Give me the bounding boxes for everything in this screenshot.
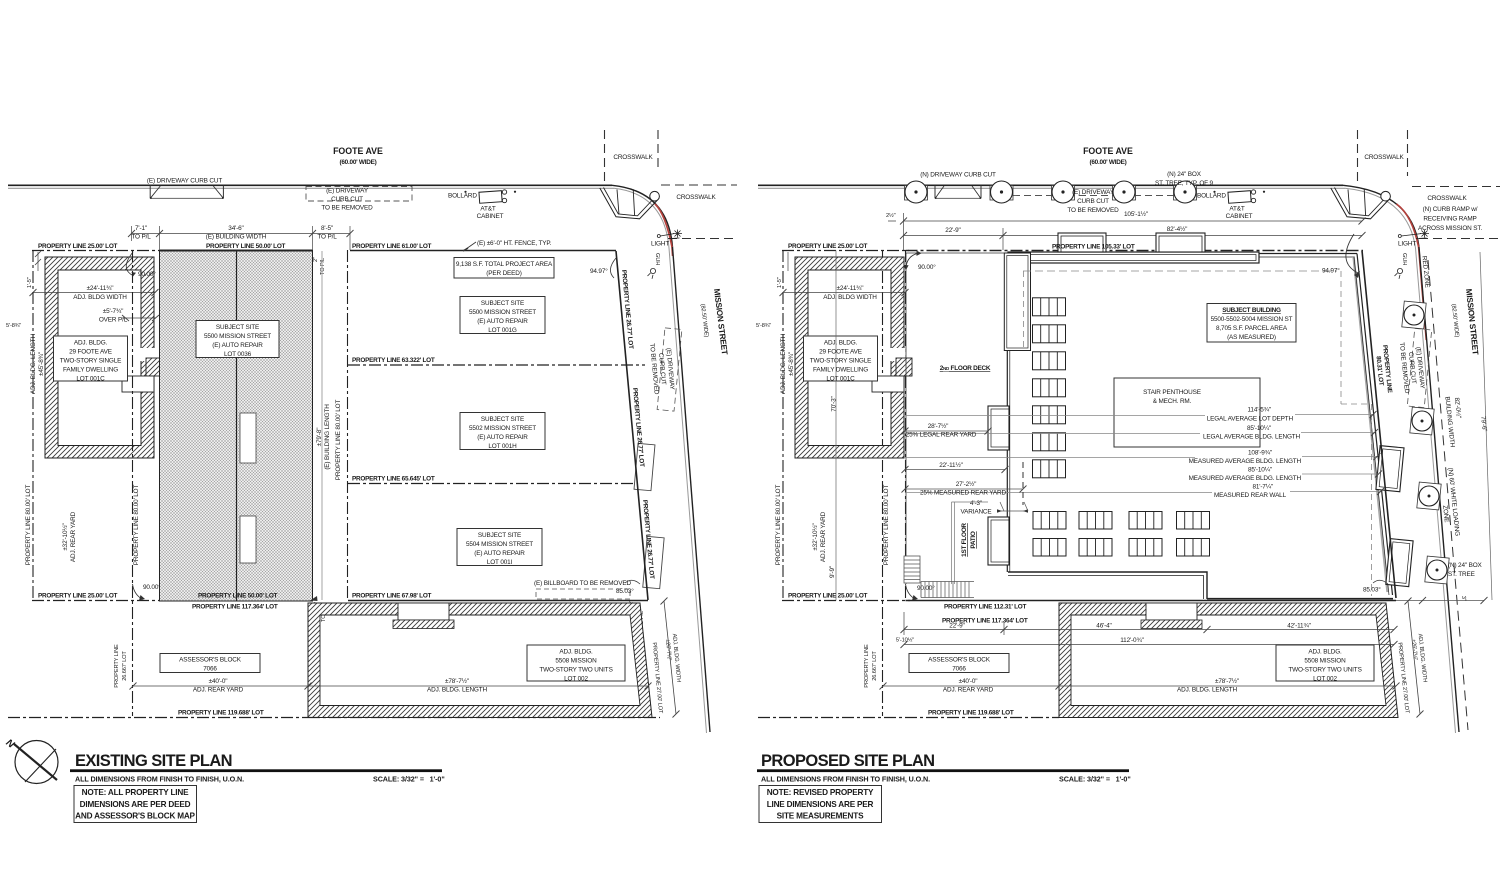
svg-text:PROPERTY LINE 25.00' LOT: PROPERTY LINE 25.00' LOT [788, 243, 868, 250]
svg-text:STAIR PENTHOUSE: STAIR PENTHOUSE [1143, 389, 1201, 396]
svg-text:ADJ. BLDG WIDTH: ADJ. BLDG WIDTH [823, 294, 877, 301]
svg-text:TO P/L: TO P/L [317, 234, 337, 241]
svg-text:PROPOSED SITE PLAN: PROPOSED SITE PLAN [761, 752, 934, 770]
svg-text:LOT 001I: LOT 001I [487, 559, 513, 566]
svg-text:(E) AUTO REPAIR: (E) AUTO REPAIR [212, 342, 263, 349]
svg-text:TWO-STORY TWO UNITS: TWO-STORY TWO UNITS [539, 667, 612, 674]
svg-text:105'-1½": 105'-1½" [1124, 210, 1148, 218]
svg-text:SUBJECT SITE: SUBJECT SITE [216, 324, 259, 331]
svg-text:ADJ. REAR YARD: ADJ. REAR YARD [820, 511, 827, 562]
svg-text:FAMILY DWELLING: FAMILY DWELLING [813, 367, 868, 374]
svg-text:PROPERTY LINE 65.645' LOT: PROPERTY LINE 65.645' LOT [352, 476, 435, 483]
svg-text:PROPERTY LINE 63.322' LOT: PROPERTY LINE 63.322' LOT [352, 357, 435, 364]
svg-text:4'-3": 4'-3" [970, 500, 982, 507]
svg-text:108'-9¾": 108'-9¾" [1248, 450, 1272, 457]
svg-text:85'-10¼": 85'-10¼" [1247, 425, 1271, 432]
svg-text:PROPERTY LINE: PROPERTY LINE [864, 644, 870, 688]
svg-text:±24'-11¾": ±24'-11¾" [837, 285, 864, 292]
svg-text:(E) BILLBOARD TO BE REMOVED: (E) BILLBOARD TO BE REMOVED [534, 580, 631, 587]
svg-text:TWO-STORY SINGLE: TWO-STORY SINGLE [60, 358, 122, 365]
svg-text:ADJ. BLDG WIDTH: ADJ. BLDG WIDTH [73, 294, 127, 301]
svg-text:SUBJECT SITE: SUBJECT SITE [481, 300, 524, 307]
svg-text:1ST FLOOR: 1ST FLOOR [961, 523, 968, 557]
svg-text:(E) DRIVEWAY CURB CUT: (E) DRIVEWAY CURB CUT [147, 178, 222, 185]
svg-text:7066: 7066 [952, 666, 966, 673]
svg-text:±40'-0": ±40'-0" [209, 678, 228, 685]
svg-text:ST. TREE, TYP. OF 9: ST. TREE, TYP. OF 9 [1155, 180, 1213, 187]
svg-text:90.00°: 90.00° [138, 270, 156, 278]
svg-text:5504 MISSION STREET: 5504 MISSION STREET [466, 541, 533, 548]
svg-text:AND ASSESSOR'S BLOCK MAP: AND ASSESSOR'S BLOCK MAP [75, 812, 195, 821]
svg-text:NOTE: ALL PROPERTY LINE: NOTE: ALL PROPERTY LINE [82, 788, 189, 797]
svg-text:27'-2½": 27'-2½" [956, 480, 977, 488]
svg-text:5'-8¾": 5'-8¾" [6, 323, 21, 329]
svg-text:AT&T: AT&T [1229, 206, 1245, 213]
svg-text:ADJ. REAR YARD: ADJ. REAR YARD [943, 687, 994, 694]
svg-text:CURB CUT: CURB CUT [331, 196, 363, 203]
svg-text:90.00°: 90.00° [918, 263, 936, 271]
svg-text:PROPERTY LINE 50.00' LOT: PROPERTY LINE 50.00' LOT [198, 593, 278, 600]
svg-text:±32'-10½": ±32'-10½" [811, 523, 819, 550]
svg-text:CROSSWALK: CROSSWALK [1364, 154, 1404, 161]
svg-text:114'-5¾": 114'-5¾" [1248, 407, 1272, 414]
svg-text:(E) AUTO REPAIR: (E) AUTO REPAIR [474, 550, 525, 557]
svg-text:26.667' LOT: 26.667' LOT [872, 651, 878, 681]
svg-text:PROPERTY LINE 61.00' LOT: PROPERTY LINE 61.00' LOT [352, 243, 432, 250]
svg-text:8'-5": 8'-5" [321, 225, 333, 232]
svg-text:90.00°: 90.00° [917, 584, 935, 592]
svg-text:LINE DIMENSIONS ARE PER: LINE DIMENSIONS ARE PER [767, 800, 874, 809]
svg-text:±32'-10½": ±32'-10½" [61, 523, 69, 550]
svg-text:MEASURED REAR WALL: MEASURED REAR WALL [1214, 492, 1287, 499]
svg-text:LOT 002: LOT 002 [564, 676, 588, 683]
svg-text:PROPERTY LINE 105.33' LOT: PROPERTY LINE 105.33' LOT [1052, 244, 1135, 251]
svg-text:AT&T: AT&T [480, 206, 496, 213]
svg-text:TWO-STORY SINGLE: TWO-STORY SINGLE [810, 358, 872, 365]
svg-text:LEGAL AVERAGE LOT DEPTH: LEGAL AVERAGE LOT DEPTH [1207, 416, 1294, 423]
svg-text:82'-4½": 82'-4½" [1167, 225, 1188, 233]
svg-text:(60.00' WIDE): (60.00' WIDE) [1090, 159, 1127, 166]
svg-text:SUBJECT SITE: SUBJECT SITE [481, 416, 524, 423]
svg-text:LIGHT: LIGHT [1398, 241, 1416, 248]
svg-text:FAMILY DWELLING: FAMILY DWELLING [63, 367, 118, 374]
svg-text:CURB CUT: CURB CUT [1077, 198, 1109, 205]
svg-text:±78'-7½": ±78'-7½" [1215, 677, 1239, 685]
svg-text:CROSSWALK: CROSSWALK [613, 154, 653, 161]
svg-text:PROPERTY LINE 80.00' LOT: PROPERTY LINE 80.00' LOT [335, 400, 342, 481]
svg-text:SUBJECT SITE: SUBJECT SITE [478, 532, 521, 539]
svg-text:LOT 001C: LOT 001C [76, 376, 105, 383]
svg-text:BOLLARD: BOLLARD [448, 193, 477, 200]
svg-text:CROSSWALK: CROSSWALK [1427, 195, 1467, 202]
svg-text:PROPERTY LINE 117.364' LOT: PROPERTY LINE 117.364' LOT [192, 604, 278, 611]
svg-text:TO P/L: TO P/L [131, 234, 151, 241]
svg-text:9,138 S.F. TOTAL PROJECT AREA: 9,138 S.F. TOTAL PROJECT AREA [456, 261, 553, 268]
svg-text:±78'-7½": ±78'-7½" [445, 677, 469, 685]
svg-text:EXISTING SITE PLAN: EXISTING SITE PLAN [75, 752, 232, 770]
svg-text:ST. TREE: ST. TREE [1448, 571, 1475, 578]
svg-text:5508 MISSION: 5508 MISSION [555, 658, 597, 665]
svg-text:TWO-STORY TWO UNITS: TWO-STORY TWO UNITS [1288, 667, 1361, 674]
svg-text:PROPERTY LINE 119.688' LOT: PROPERTY LINE 119.688' LOT [178, 710, 264, 717]
svg-text:(E) BUILDING WIDTH: (E) BUILDING WIDTH [206, 234, 267, 241]
svg-text:±40'-0": ±40'-0" [959, 678, 978, 685]
svg-text:ADJ. REAR YARD: ADJ. REAR YARD [193, 687, 244, 694]
svg-text:LOT 0036: LOT 0036 [224, 351, 252, 358]
svg-text:(E) ±6'-0" HT. FENCE, TYP.: (E) ±6'-0" HT. FENCE, TYP. [477, 240, 552, 247]
svg-text:85.03°: 85.03° [616, 587, 634, 595]
svg-text:(N) CURB RAMP w/: (N) CURB RAMP w/ [1423, 206, 1478, 213]
svg-text:ADJ. BLDG.: ADJ. BLDG. [824, 340, 858, 347]
svg-text:BOLLARD: BOLLARD [1197, 193, 1226, 200]
svg-text:(PER DEED): (PER DEED) [486, 270, 521, 277]
svg-text:22'-9": 22'-9" [949, 623, 964, 630]
svg-text:RECEIVING RAMP: RECEIVING RAMP [1423, 216, 1476, 223]
svg-text:112'-0¾": 112'-0¾" [1120, 637, 1144, 644]
svg-text:SCALE: 3/32" = 1'-0": SCALE: 3/32" = 1'-0" [373, 775, 445, 784]
svg-text:TO BE REMOVED: TO BE REMOVED [1067, 207, 1119, 214]
svg-text:PROPERTY LINE 119.688' LOT: PROPERTY LINE 119.688' LOT [928, 710, 1014, 717]
svg-text:25% LEGAL REAR YARD: 25% LEGAL REAR YARD [906, 432, 977, 439]
svg-text:ADJ. BLDG. LENGTH: ADJ. BLDG. LENGTH [1177, 687, 1237, 694]
svg-text:8,705 S.F. PARCEL AREA: 8,705 S.F. PARCEL AREA [1216, 325, 1288, 332]
svg-text:ADJ. BLDG. LENGTH: ADJ. BLDG. LENGTH [780, 333, 787, 393]
svg-text:ADJ. REAR YARD: ADJ. REAR YARD [70, 511, 77, 562]
svg-text:(E) DRIVEWAY: (E) DRIVEWAY [326, 188, 369, 195]
svg-text:PROPERTY LINE 67.98' LOT: PROPERTY LINE 67.98' LOT [352, 593, 432, 600]
svg-text:(E) AUTO REPAIR: (E) AUTO REPAIR [477, 318, 528, 325]
svg-text:5508 MISSION: 5508 MISSION [1304, 658, 1346, 665]
svg-text:29 FOOTE AVE: 29 FOOTE AVE [69, 349, 112, 356]
svg-text:LEGAL AVERAGE BLDG. LENGTH: LEGAL AVERAGE BLDG. LENGTH [1203, 434, 1300, 441]
svg-text:5'-10½": 5'-10½" [896, 637, 914, 644]
svg-text:PROPERTY LINE 25.00' LOT: PROPERTY LINE 25.00' LOT [788, 593, 868, 600]
svg-text:ADJ. BLDG.: ADJ. BLDG. [1308, 649, 1342, 656]
svg-text:SCALE: 3/32" = 1'-0": SCALE: 3/32" = 1'-0" [1059, 775, 1131, 784]
svg-text:PROPERTY LINE 80.00' LOT: PROPERTY LINE 80.00' LOT [133, 485, 140, 566]
svg-text:ASSESSOR'S BLOCK: ASSESSOR'S BLOCK [928, 657, 991, 664]
svg-text:±45'-8¾": ±45'-8¾" [788, 352, 795, 376]
svg-text:OVER P/L: OVER P/L [99, 317, 128, 324]
svg-text:(E) DRIVEWAY: (E) DRIVEWAY [1072, 189, 1115, 196]
svg-text:(60.00' WIDE): (60.00' WIDE) [340, 159, 377, 166]
svg-text:PATIO: PATIO [970, 531, 977, 549]
svg-text:(E) AUTO REPAIR: (E) AUTO REPAIR [477, 434, 528, 441]
svg-text:PROPERTY LINE 80.00' LOT: PROPERTY LINE 80.00' LOT [883, 485, 890, 566]
svg-text:28'-7½": 28'-7½" [928, 422, 949, 430]
svg-text:1'-5": 1'-5" [777, 277, 783, 288]
svg-text:FOOTE AVE: FOOTE AVE [333, 146, 383, 156]
svg-text:(N) 24" BOX: (N) 24" BOX [1167, 171, 1202, 178]
svg-text:& MECH. RM.: & MECH. RM. [1153, 398, 1192, 405]
svg-text:26.667' LOT: 26.667' LOT [122, 651, 128, 681]
svg-text:ALL DIMENSIONS FROM FINISH TO: ALL DIMENSIONS FROM FINISH TO FINISH, U.… [75, 775, 244, 784]
svg-text:GUH: GUH [1401, 253, 1407, 265]
svg-text:5500 MISSION STREET: 5500 MISSION STREET [469, 309, 536, 316]
svg-text:±24'-11¾": ±24'-11¾" [87, 285, 114, 292]
svg-text:±5'-7¾": ±5'-7¾" [103, 308, 124, 315]
svg-text:9'-9": 9'-9" [829, 566, 836, 578]
svg-text:46'-4": 46'-4" [1096, 623, 1111, 630]
svg-text:PROPERTY LINE 50.00' LOT: PROPERTY LINE 50.00' LOT [206, 243, 286, 250]
svg-text:ADJ. BLDG. LENGTH: ADJ. BLDG. LENGTH [30, 333, 37, 393]
svg-text:SITE MEASUREMENTS: SITE MEASUREMENTS [777, 812, 864, 821]
svg-text:85'-10¼": 85'-10¼" [1248, 467, 1272, 474]
svg-text:ADJ. BLDG.: ADJ. BLDG. [74, 340, 108, 347]
svg-text:70'-3": 70'-3" [831, 396, 838, 411]
svg-text:(AS MEASURED): (AS MEASURED) [1227, 334, 1276, 341]
svg-text:85.03°: 85.03° [1363, 586, 1381, 594]
svg-text:PROPERTY LINE 112.31' LOT: PROPERTY LINE 112.31' LOT [944, 604, 1027, 611]
svg-text:LIGHT: LIGHT [651, 241, 669, 248]
svg-text:MEASURED AVERAGE BLDG. LENGTH: MEASURED AVERAGE BLDG. LENGTH [1189, 475, 1302, 482]
svg-text:ADJ. BLDG.: ADJ. BLDG. [559, 649, 593, 656]
svg-text:94.97°: 94.97° [590, 267, 608, 275]
svg-text:34'-6": 34'-6" [228, 225, 243, 232]
svg-text:GUH: GUH [654, 253, 660, 265]
svg-text:22'-9": 22'-9" [945, 227, 960, 234]
svg-text:SUBJECT BUILDING: SUBJECT BUILDING [1222, 307, 1281, 314]
svg-text:CABINET: CABINET [1226, 213, 1253, 220]
svg-text:ASSESSOR'S BLOCK: ASSESSOR'S BLOCK [179, 657, 242, 664]
svg-text:42'-11¾": 42'-11¾" [1287, 623, 1311, 630]
svg-text:5'-8¾": 5'-8¾" [756, 323, 771, 329]
svg-text:TO BE REMOVED: TO BE REMOVED [321, 204, 373, 211]
svg-text:CABINET: CABINET [477, 213, 504, 220]
svg-text:7'-1": 7'-1" [135, 225, 147, 232]
svg-text:25% MEASURED REAR YARD: 25% MEASURED REAR YARD [920, 490, 1006, 497]
svg-text:MEASURED AVERAGE BLDG. LENGTH: MEASURED AVERAGE BLDG. LENGTH [1189, 458, 1302, 465]
svg-text:ALL DIMENSIONS FROM FINISH TO: ALL DIMENSIONS FROM FINISH TO FINISH, U.… [761, 775, 930, 784]
svg-text:ACROSS MISSION ST.: ACROSS MISSION ST. [1418, 225, 1482, 232]
svg-text:2ND FLOOR DECK: 2ND FLOOR DECK [940, 365, 991, 372]
svg-text:TO P/L: TO P/L [320, 258, 326, 275]
svg-text:(N) 24" BOX: (N) 24" BOX [1448, 562, 1483, 569]
svg-text:LOT 001G: LOT 001G [488, 327, 517, 334]
svg-text:LOT 002: LOT 002 [1313, 676, 1337, 683]
svg-text:FOOTE AVE: FOOTE AVE [1083, 146, 1133, 156]
svg-text:2": 2" [313, 257, 319, 262]
svg-text:PROPERTY LINE: PROPERTY LINE [114, 644, 120, 688]
svg-text:81'-7¼": 81'-7¼" [1252, 484, 1273, 491]
svg-text:3": 3" [1460, 596, 1466, 602]
svg-text:VARIANCE: VARIANCE [961, 509, 992, 516]
svg-text:5500 MISSION STREET: 5500 MISSION STREET [204, 333, 271, 340]
svg-text:7066: 7066 [203, 666, 217, 673]
svg-text:1'-5": 1'-5" [27, 277, 33, 288]
svg-text:±45'-8¾": ±45'-8¾" [38, 352, 45, 376]
svg-text:(E) BUILDING LENGTH: (E) BUILDING LENGTH [324, 404, 331, 470]
svg-text:2½": 2½" [886, 212, 896, 219]
svg-text:LOT 001H: LOT 001H [488, 443, 517, 450]
svg-text:22'-11½": 22'-11½" [939, 461, 963, 469]
svg-text:PROPERTY LINE 80.00' LOT: PROPERTY LINE 80.00' LOT [775, 485, 782, 566]
svg-text:5500-5502-5004 MISSION ST: 5500-5502-5004 MISSION ST [1211, 316, 1293, 323]
svg-text:94.97°: 94.97° [1322, 267, 1340, 275]
svg-text:ADJ. BLDG. LENGTH: ADJ. BLDG. LENGTH [427, 687, 487, 694]
svg-text:PROPERTY LINE 80.00' LOT: PROPERTY LINE 80.00' LOT [25, 485, 32, 566]
svg-text:90.00°: 90.00° [143, 583, 161, 591]
svg-text:(N) DRIVEWAY CURB CUT: (N) DRIVEWAY CURB CUT [920, 172, 996, 179]
svg-text:29 FOOTE AVE: 29 FOOTE AVE [819, 349, 862, 356]
svg-text:PROPERTY LINE 25.00' LOT: PROPERTY LINE 25.00' LOT [38, 593, 118, 600]
svg-text:DIMENSIONS ARE PER DEED: DIMENSIONS ARE PER DEED [80, 800, 191, 809]
svg-text:PROPERTY LINE 25.00' LOT: PROPERTY LINE 25.00' LOT [38, 243, 118, 250]
svg-text:CROSSWALK: CROSSWALK [676, 194, 716, 201]
svg-text:LOT 001C: LOT 001C [826, 376, 855, 383]
svg-text:5502 MISSION STREET: 5502 MISSION STREET [469, 425, 536, 432]
svg-text:NOTE: REVISED PROPERTY: NOTE: REVISED PROPERTY [767, 788, 874, 797]
